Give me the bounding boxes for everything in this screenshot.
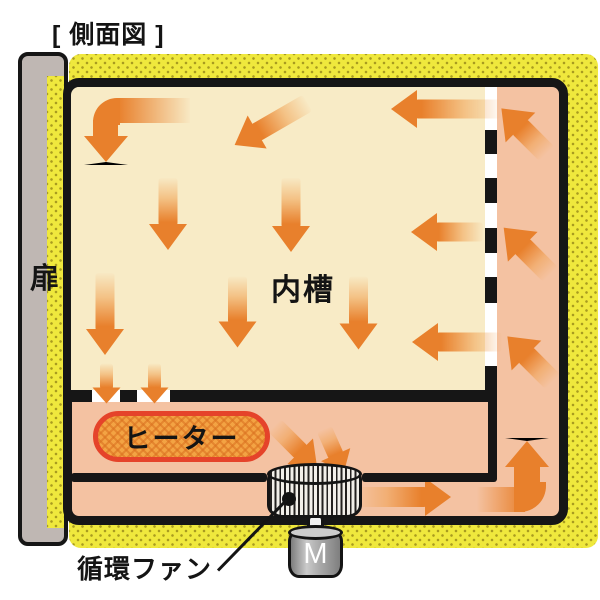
heater-label: ヒーター (124, 417, 240, 456)
wall-dash-vertical (485, 228, 497, 253)
motor-label: M (288, 538, 343, 571)
duct-partition-right (362, 473, 493, 482)
inner-chamber-label: 内槽 (271, 265, 335, 309)
heater-element: ヒーター (93, 411, 270, 462)
wall-dash-bottom (170, 390, 497, 402)
side-view-diagram: [ 側面図 ] ヒーター M 扉 内槽 循環ファン (0, 0, 600, 600)
door-label: 扉 (30, 255, 59, 297)
inner-chamber (71, 87, 485, 390)
duct-partition-left (71, 473, 267, 482)
wall-dash-vertical (485, 130, 497, 154)
wall-dash-bottom (71, 390, 92, 402)
wall-dash-bottom (120, 390, 137, 402)
diagram-title: [ 側面図 ] (52, 15, 165, 51)
wall-dash-vertical (485, 178, 497, 203)
duct-partition-vertical (488, 395, 497, 482)
insulation-door-strip (47, 76, 64, 528)
circulation-fan-top (267, 463, 362, 485)
wall-dash-vertical (485, 277, 497, 303)
circulation-fan-label: 循環ファン (77, 549, 212, 586)
